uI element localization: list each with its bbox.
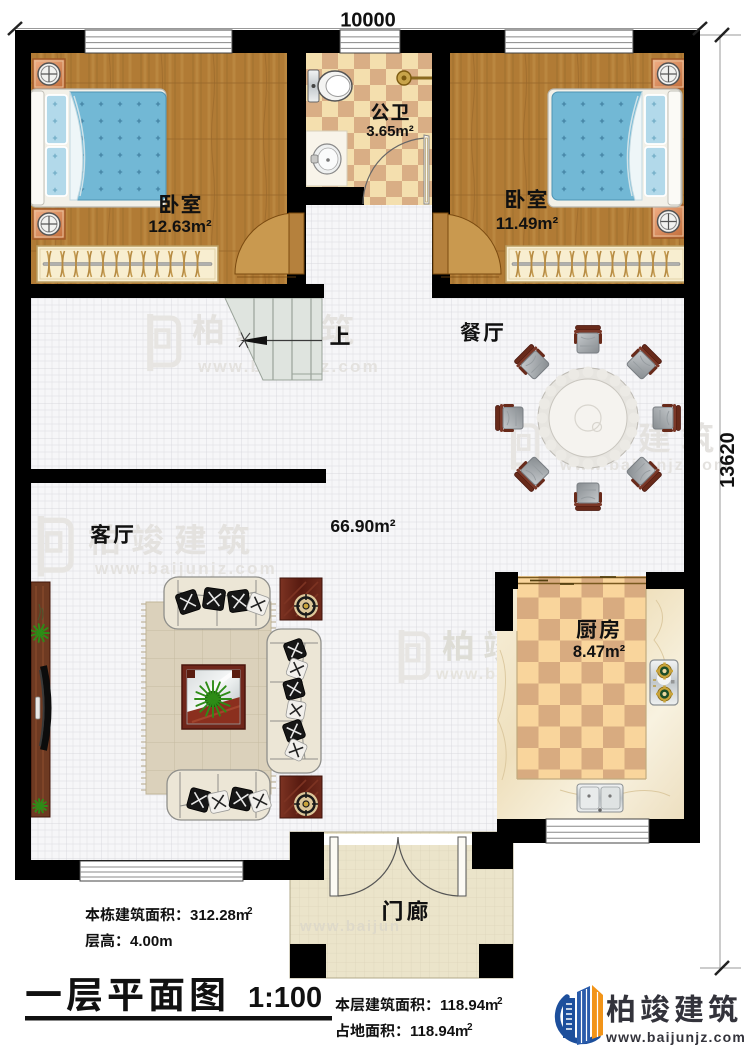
svg-text:12.63m²: 12.63m² <box>148 217 212 236</box>
svg-text:11.49m²: 11.49m² <box>496 214 559 233</box>
svg-text:312.28m: 312.28m <box>190 907 249 924</box>
svg-text:66.90m²: 66.90m² <box>330 516 395 536</box>
svg-text:10000: 10000 <box>340 10 396 32</box>
svg-text:www.baijunjz.com: www.baijunjz.com <box>94 559 277 578</box>
svg-text:13620: 13620 <box>717 432 739 488</box>
svg-text:2: 2 <box>467 1022 473 1033</box>
svg-text:118.94m: 118.94m <box>440 997 498 1014</box>
svg-text:2: 2 <box>247 906 253 917</box>
svg-text:3.65m²: 3.65m² <box>366 123 414 140</box>
svg-text:www.baijunjz.com: www.baijunjz.com <box>605 1029 746 1045</box>
svg-text:2: 2 <box>497 996 503 1007</box>
svg-text:8.47m²: 8.47m² <box>573 643 626 661</box>
svg-text:4.00m: 4.00m <box>130 933 173 950</box>
svg-text:118.94m: 118.94m <box>410 1023 468 1040</box>
svg-text:1:100: 1:100 <box>248 982 322 1014</box>
